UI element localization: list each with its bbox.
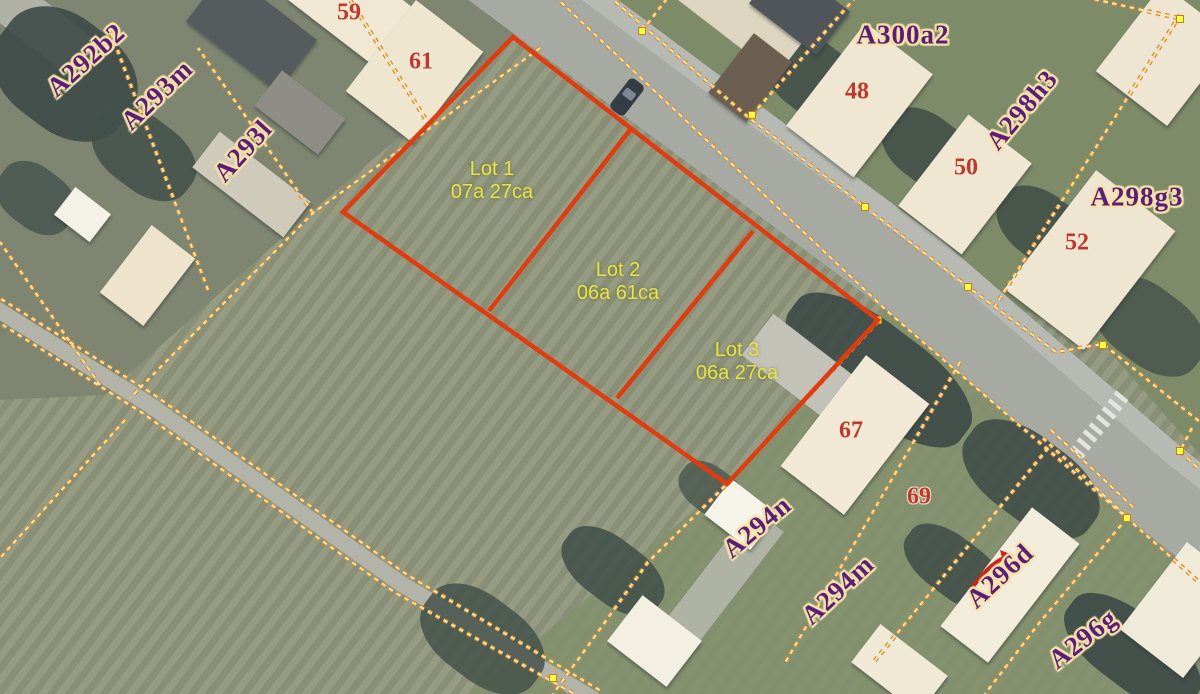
- parcel-label: A300a2: [857, 20, 950, 51]
- house-number: 69: [907, 484, 931, 511]
- aerial-map-canvas[interactable]: A292b2 A293m A293l A300a2 A298h3 A298g3 …: [0, 0, 1200, 694]
- house-number: 61: [409, 49, 433, 76]
- house-number: 67: [839, 418, 863, 445]
- lot-name: Lot 2: [577, 259, 659, 282]
- lot-area: 06a 27ca: [696, 362, 778, 385]
- lot-name: Lot 1: [451, 158, 533, 181]
- lot-label-2: Lot 2 06a 61ca: [577, 259, 659, 305]
- house-number: 59: [337, 0, 361, 27]
- parcel-label: A298g3: [1091, 182, 1184, 213]
- lot-name: Lot 3: [696, 339, 778, 362]
- house-number: 52: [1065, 230, 1089, 257]
- lot-area: 06a 61ca: [577, 282, 659, 305]
- lot-label-3: Lot 3 06a 27ca: [696, 339, 778, 385]
- lot-label-1: Lot 1 07a 27ca: [451, 158, 533, 204]
- house-number: 50: [954, 155, 978, 182]
- lot-area: 07a 27ca: [451, 181, 533, 204]
- house-number: 48: [845, 79, 869, 106]
